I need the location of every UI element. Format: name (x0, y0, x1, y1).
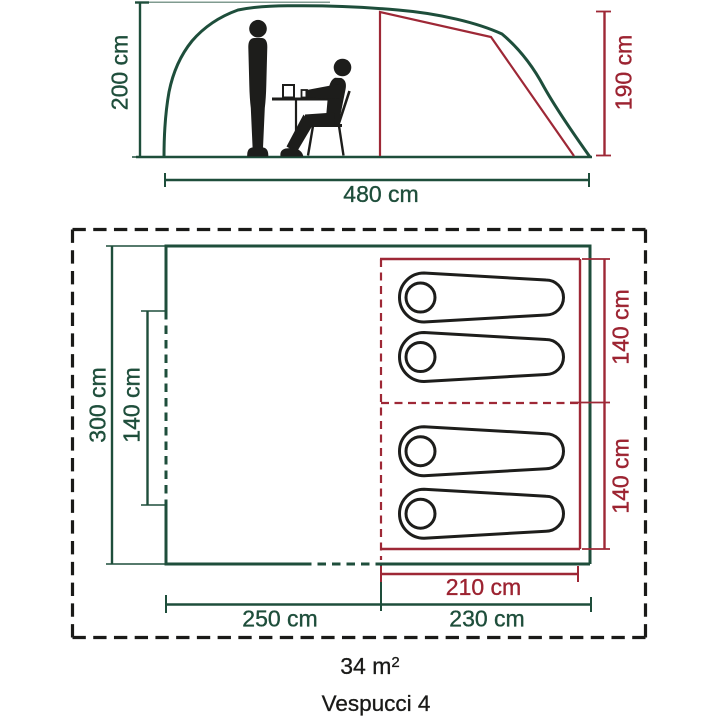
svg-text:140 cm: 140 cm (608, 438, 634, 513)
svg-text:300 cm: 300 cm (85, 367, 111, 442)
svg-text:250 cm: 250 cm (242, 606, 317, 632)
svg-text:34 m2: 34 m2 (340, 653, 399, 679)
svg-text:Vespucci 4: Vespucci 4 (322, 691, 431, 716)
svg-text:230 cm: 230 cm (449, 606, 524, 632)
svg-text:140 cm: 140 cm (119, 367, 145, 442)
svg-text:140 cm: 140 cm (608, 289, 634, 364)
svg-text:200 cm: 200 cm (107, 35, 133, 110)
svg-text:190 cm: 190 cm (611, 35, 637, 110)
svg-text:210 cm: 210 cm (446, 574, 521, 600)
svg-text:480 cm: 480 cm (343, 181, 418, 207)
